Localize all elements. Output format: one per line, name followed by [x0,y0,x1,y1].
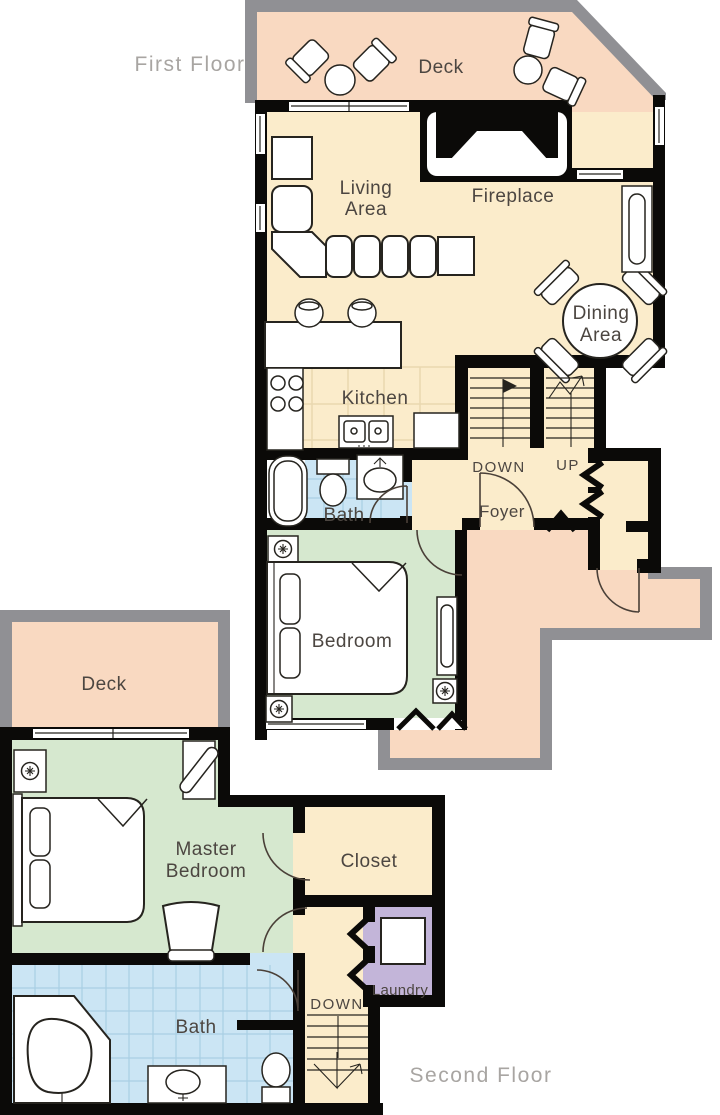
first-floor-label: First Floor [135,53,246,76]
headboard [13,794,22,926]
fireplace-label: Fireplace [472,186,555,207]
dining-area-label-1: Dining [573,303,630,324]
deck-table [325,65,355,95]
sofa-cushion [382,236,408,277]
toilet-tank [317,459,349,474]
second-floor-label: Second Floor [410,1064,553,1087]
pillow [280,628,300,678]
stairs-down-label: DOWN [472,459,526,476]
speaker-icon [275,541,292,558]
pillow [30,860,50,908]
bar-stool [348,299,376,327]
bath2-door-opening [250,953,293,965]
floor-plan-page: First Floor Deck Living Area Fireplace D… [0,0,720,1115]
bath-label: Bath [323,505,364,526]
end-table [438,237,474,275]
master-bedroom-label-2: Bedroom [166,861,247,882]
pillow [30,808,50,856]
stairs-up-label: UP [556,457,580,474]
armchair [163,902,219,961]
deck2-label: Deck [81,674,126,695]
sofa-cushion [326,236,352,277]
kitchen-bar [265,322,401,368]
fireplace [427,112,567,176]
closet-door-opening [293,833,305,878]
floor-plan-drawing: First Floor Deck Living Area Fireplace D… [0,0,720,1115]
end-table [272,137,312,179]
master-bedroom-label-1: Master [175,839,236,860]
pillow [280,574,300,624]
bath-sink [166,1070,200,1094]
dresser-door [441,605,453,667]
deck-table [514,56,542,84]
sofa-chaise [272,186,312,232]
dining-cabinet-door [629,194,645,264]
living-area-label-1: Living [340,178,393,199]
bar-stool [295,299,323,327]
toilet [320,474,346,506]
bath2-label: Bath [175,1017,216,1038]
toilet [262,1053,290,1087]
foyer-label: Foyer [479,502,525,521]
bath-sink [364,468,396,492]
washer [381,918,425,964]
deck-label: Deck [418,57,463,78]
sofa-cushion [410,236,436,277]
kitchen-label: Kitchen [342,388,409,409]
bathtub-inner [274,461,302,521]
living-area-label-2: Area [345,199,387,220]
dishwasher [414,413,459,448]
toilet-base [262,1087,290,1103]
corner-tub-basin [28,1019,92,1093]
speaker-icon [22,763,39,780]
stairs-down-label: DOWN [310,996,364,1013]
speaker-icon [271,701,288,718]
second-floor-windows [33,729,189,738]
hall-door-opening [293,915,305,953]
kitchen-sink [339,416,393,448]
laundry-label: Laundry [372,982,429,999]
closet-label: Closet [341,851,398,872]
dining-area-label-2: Area [580,325,622,346]
bedroom-label: Bedroom [312,631,393,652]
speaker-icon [437,683,454,700]
sofa-cushion [354,236,380,277]
